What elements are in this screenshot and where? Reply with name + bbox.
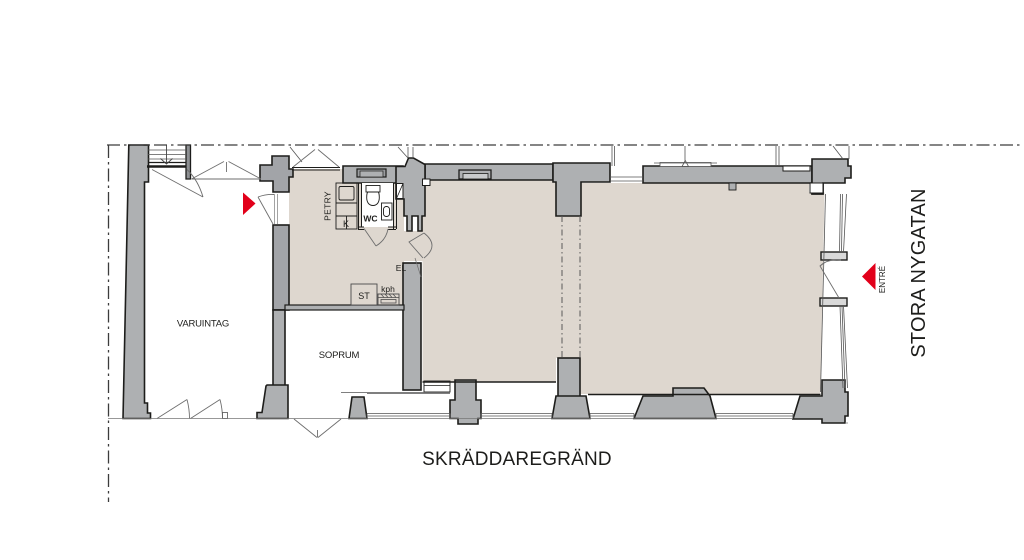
svg-text:SKRÄDDAREGRÄND: SKRÄDDAREGRÄND	[422, 449, 612, 470]
svg-text:STORA NYGATAN: STORA NYGATAN	[908, 188, 930, 357]
svg-text:SOPRUM: SOPRUM	[319, 350, 360, 361]
svg-text:VARUINTAG: VARUINTAG	[177, 319, 229, 330]
svg-text:ST: ST	[358, 291, 370, 301]
svg-text:ENTRÉ: ENTRÉ	[878, 266, 887, 293]
svg-text:PETRY: PETRY	[323, 191, 333, 221]
svg-text:EL: EL	[396, 263, 407, 273]
svg-text:kph: kph	[381, 284, 395, 294]
svg-text:WC: WC	[363, 214, 377, 224]
svg-text:K: K	[343, 219, 349, 229]
